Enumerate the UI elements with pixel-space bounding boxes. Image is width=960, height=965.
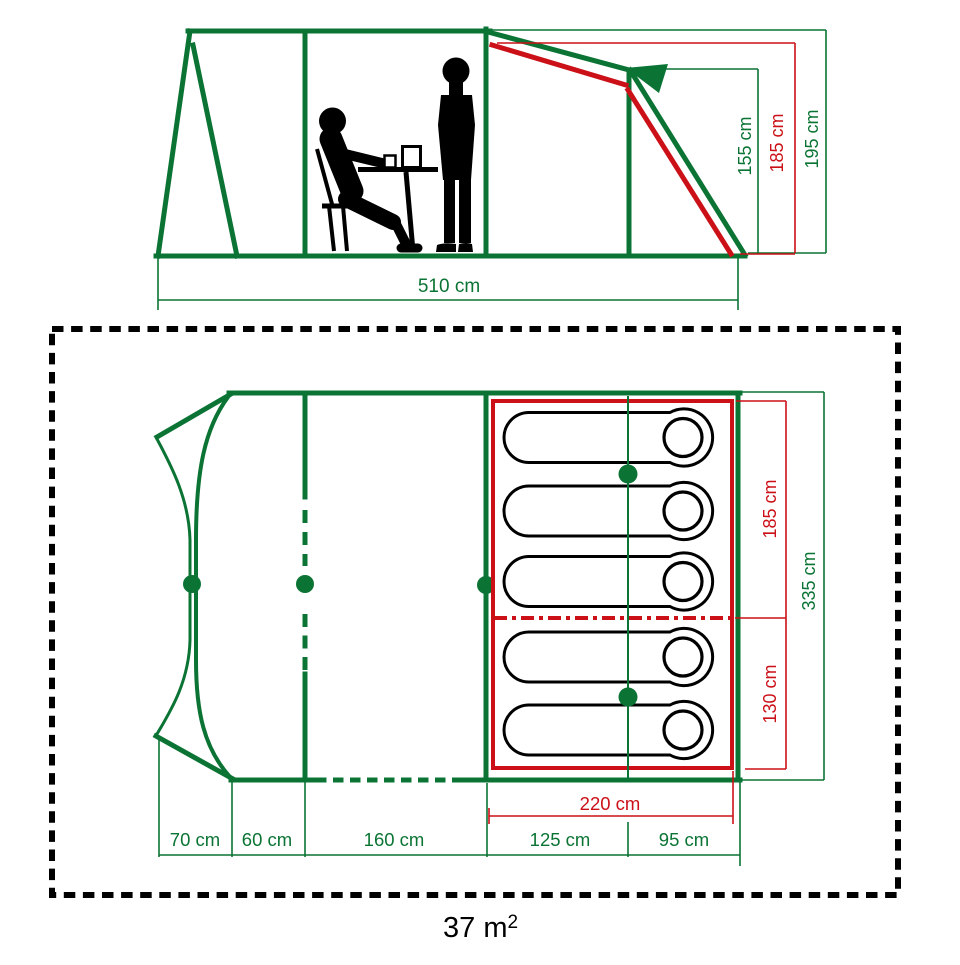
svg-text:160 cm: 160 cm — [364, 829, 425, 850]
svg-text:70 cm: 70 cm — [170, 829, 220, 850]
svg-text:95 cm: 95 cm — [659, 829, 709, 850]
svg-text:510 cm: 510 cm — [418, 276, 480, 297]
svg-text:125 cm: 125 cm — [530, 829, 591, 850]
svg-text:185 cm: 185 cm — [760, 479, 780, 538]
svg-text:185 cm: 185 cm — [767, 113, 787, 172]
svg-text:335 cm: 335 cm — [799, 551, 819, 610]
svg-text:220 cm: 220 cm — [580, 793, 641, 814]
svg-text:130 cm: 130 cm — [760, 664, 780, 723]
svg-text:60 cm: 60 cm — [242, 829, 292, 850]
svg-text:195 cm: 195 cm — [802, 109, 822, 168]
svg-text:37 m2: 37 m2 — [443, 912, 518, 944]
svg-text:155 cm: 155 cm — [735, 116, 755, 175]
